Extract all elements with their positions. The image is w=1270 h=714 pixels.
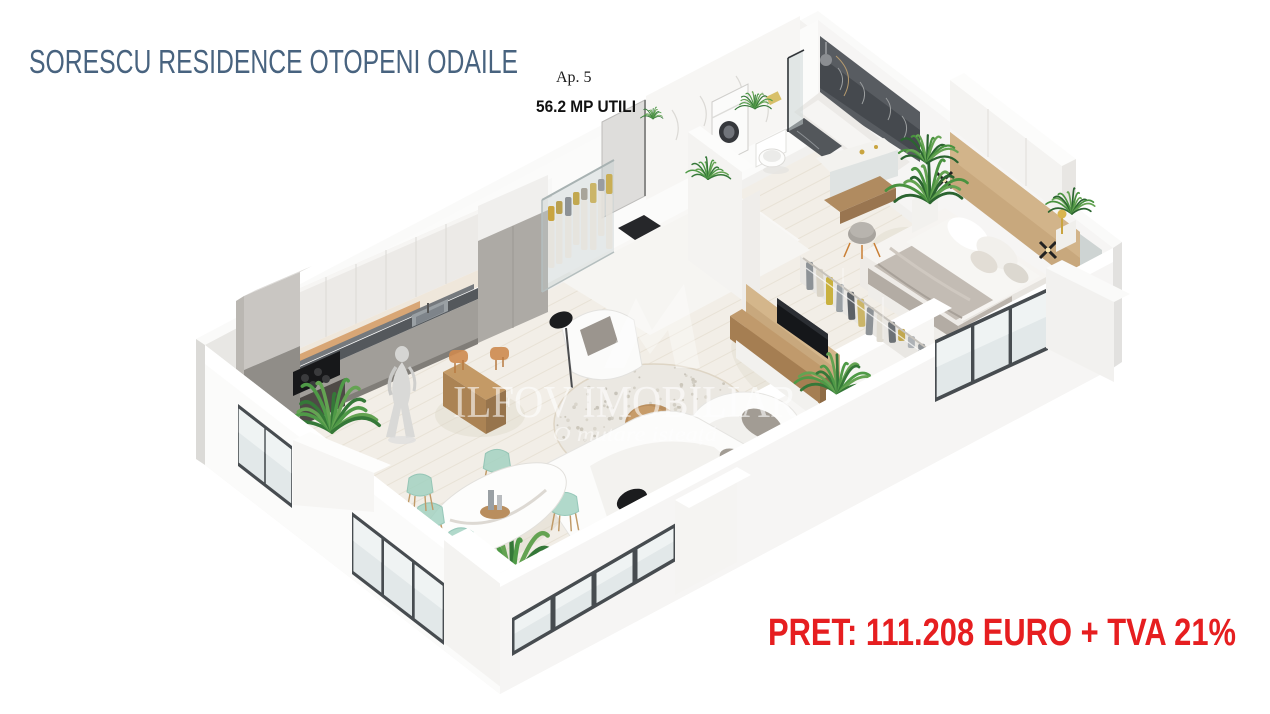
svg-text:Ap. 5: Ap. 5	[556, 69, 592, 86]
svg-text:56.2 MP UTILI: 56.2 MP UTILI	[536, 97, 636, 116]
svg-text:SORESCU RESIDENCE OTOPENI ODAI: SORESCU RESIDENCE OTOPENI ODAILE	[29, 43, 518, 80]
svg-text:PRET: 111.208 EURO + TVA 21%: PRET: 111.208 EURO + TVA 21%	[768, 612, 1236, 654]
svg-text:ILFOV IMOBILIAR: ILFOV IMOBILIAR	[453, 377, 797, 427]
svg-text:O mutare isteață: O mutare isteață	[553, 422, 717, 446]
